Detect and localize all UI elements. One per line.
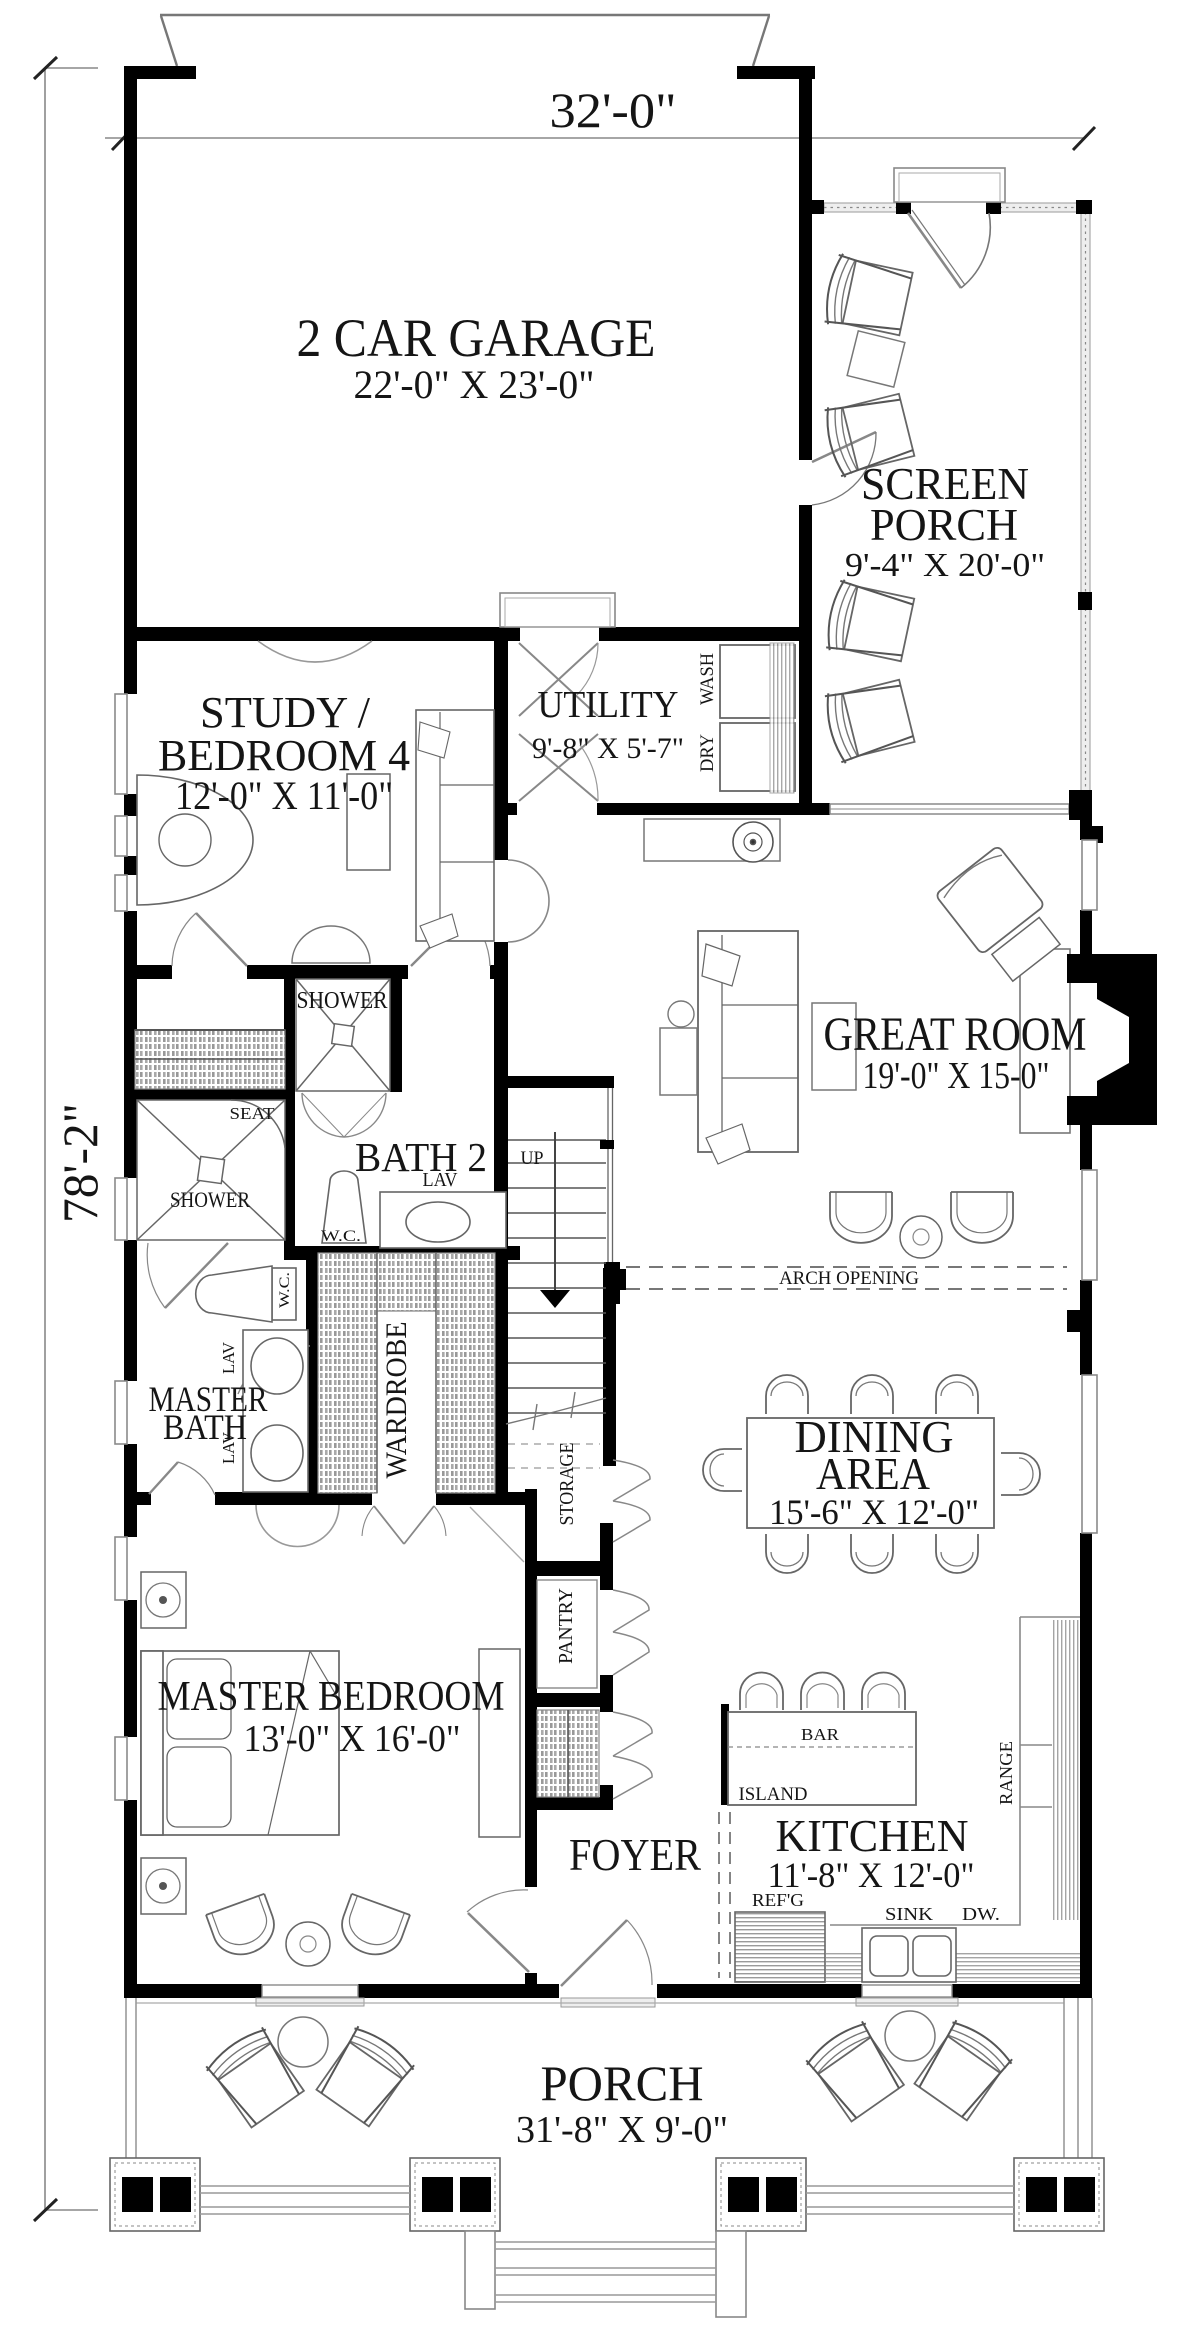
svg-text:W.C.: W.C. [277, 1272, 293, 1308]
svg-text:STORAGE: STORAGE [556, 1443, 578, 1526]
svg-text:LAV: LAV [219, 1341, 238, 1374]
svg-text:KITCHEN: KITCHEN [776, 1810, 969, 1861]
svg-text:WARDROBE: WARDROBE [380, 1322, 413, 1479]
svg-text:W.C.: W.C. [321, 1228, 361, 1245]
svg-text:11'-8" X 12'-0": 11'-8" X 12'-0" [768, 1855, 975, 1895]
svg-text:PORCH: PORCH [541, 2055, 704, 2111]
svg-text:BAR: BAR [801, 1725, 840, 1744]
svg-text:2 CAR GARAGE: 2 CAR GARAGE [297, 308, 656, 368]
svg-text:WASH: WASH [697, 653, 718, 705]
svg-text:LAV: LAV [423, 1169, 459, 1191]
svg-text:13'-0" X 16'-0": 13'-0" X 16'-0" [244, 1718, 461, 1760]
svg-text:GREAT ROOM: GREAT ROOM [824, 1008, 1087, 1061]
svg-text:9'-8" X 5'-7": 9'-8" X 5'-7" [532, 732, 684, 765]
svg-text:9'-4" X 20'-0": 9'-4" X 20'-0" [845, 547, 1045, 584]
svg-text:UP: UP [521, 1148, 544, 1169]
svg-text:SHOWER: SHOWER [170, 1187, 250, 1212]
svg-text:REF'G: REF'G [752, 1890, 804, 1910]
svg-text:SINK: SINK [885, 1904, 933, 1924]
svg-text:ARCH OPENING: ARCH OPENING [779, 1268, 919, 1289]
svg-text:78'-2": 78'-2" [52, 1103, 108, 1223]
svg-text:FOYER: FOYER [569, 1829, 701, 1880]
svg-text:BATH: BATH [163, 1407, 247, 1447]
svg-text:DW.: DW. [962, 1904, 1000, 1924]
svg-text:DRY: DRY [697, 734, 718, 772]
svg-text:15'-6" X 12'-0": 15'-6" X 12'-0" [769, 1492, 979, 1532]
svg-text:STUDY /: STUDY / [200, 688, 371, 737]
svg-text:MASTER BEDROOM: MASTER BEDROOM [158, 1674, 505, 1720]
svg-text:SHOWER: SHOWER [297, 988, 388, 1014]
svg-text:12'-0" X 11'-0": 12'-0" X 11'-0" [175, 773, 393, 818]
svg-text:RANGE: RANGE [996, 1741, 1016, 1805]
svg-text:32'-0": 32'-0" [550, 82, 677, 138]
svg-text:PORCH: PORCH [870, 500, 1018, 550]
svg-text:22'-0" X 23'-0": 22'-0" X 23'-0" [354, 362, 595, 407]
svg-text:UTILITY: UTILITY [538, 684, 679, 726]
svg-text:19'-0" X 15-0": 19'-0" X 15-0" [863, 1055, 1050, 1097]
svg-text:PANTRY: PANTRY [555, 1588, 577, 1664]
svg-text:31'-8" X 9'-0": 31'-8" X 9'-0" [516, 2109, 728, 2151]
svg-text:SEAT: SEAT [230, 1104, 276, 1123]
svg-text:ISLAND: ISLAND [739, 1784, 808, 1805]
svg-text:BATH 2: BATH 2 [355, 1134, 487, 1180]
